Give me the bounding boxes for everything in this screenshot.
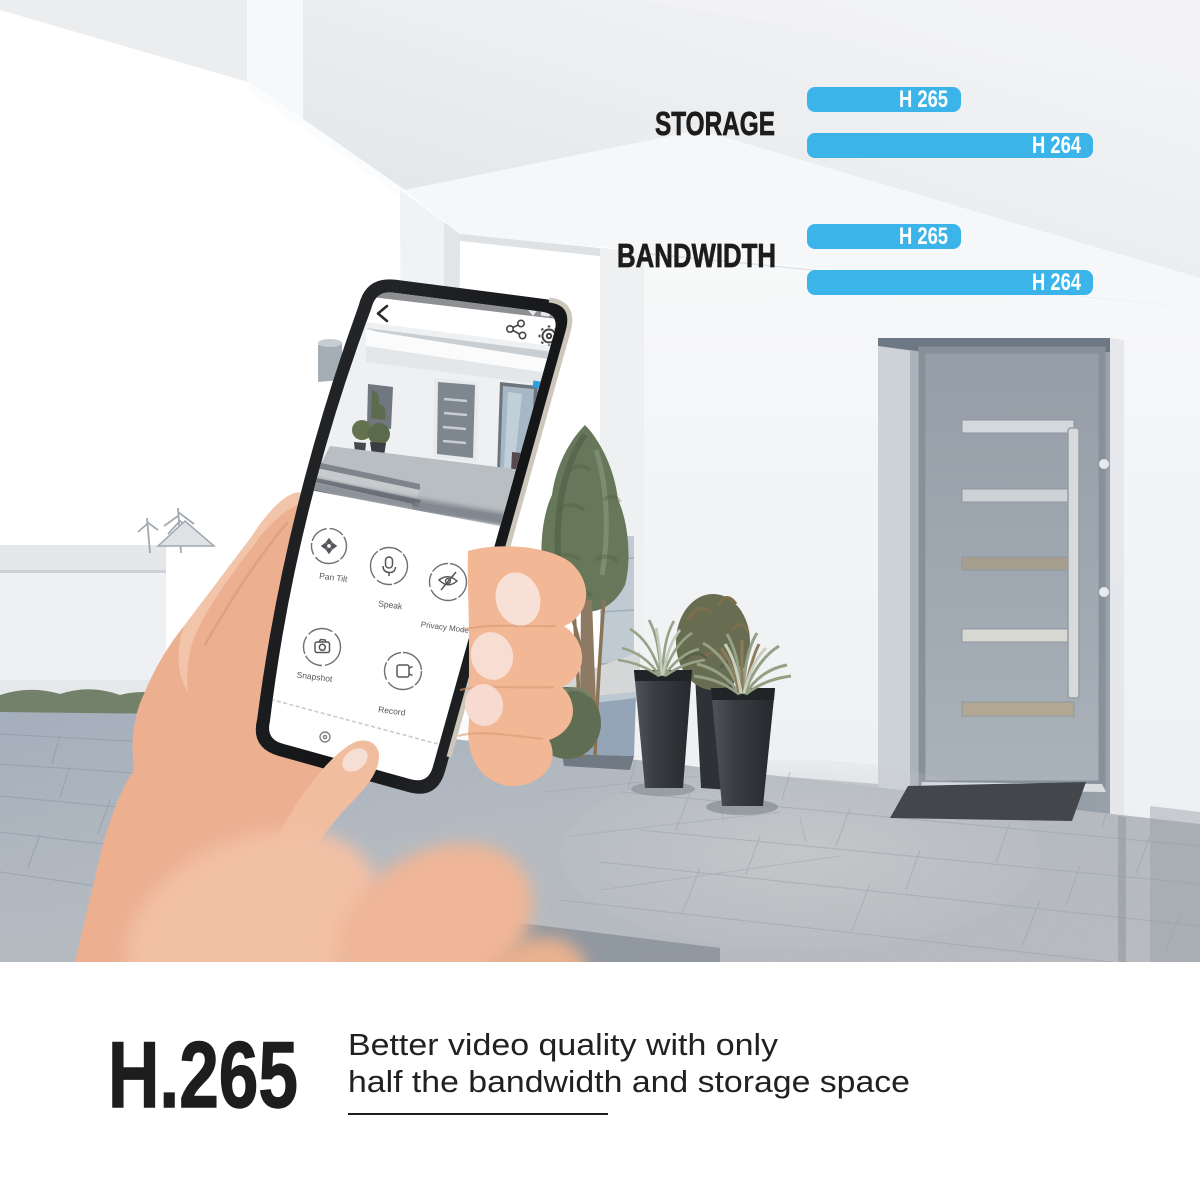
svg-text:H.265: H.265 <box>108 1022 298 1127</box>
svg-text:half the bandwidth and storage: half the bandwidth and storage space <box>348 1064 910 1099</box>
svg-text:H 264: H 264 <box>1032 269 1081 296</box>
svg-text:H 264: H 264 <box>1032 132 1081 159</box>
svg-text:H 265: H 265 <box>899 86 948 113</box>
svg-text:STORAGE: STORAGE <box>655 105 775 142</box>
svg-text:Better video quality with only: Better video quality with only <box>348 1027 779 1062</box>
svg-text:BANDWIDTH: BANDWIDTH <box>617 237 776 274</box>
svg-text:H 265: H 265 <box>899 223 948 250</box>
